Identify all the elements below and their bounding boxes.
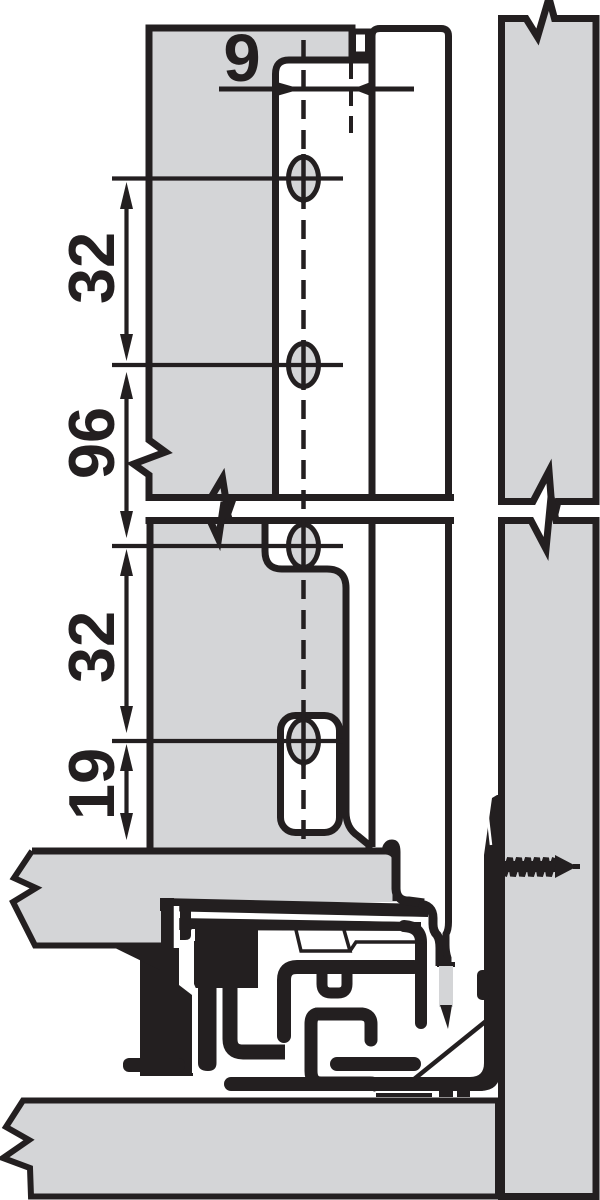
svg-text:9: 9 xyxy=(223,21,260,96)
svg-text:19: 19 xyxy=(55,748,128,820)
svg-text:32: 32 xyxy=(55,232,128,304)
svg-text:96: 96 xyxy=(55,407,128,479)
svg-text:32: 32 xyxy=(55,611,128,683)
